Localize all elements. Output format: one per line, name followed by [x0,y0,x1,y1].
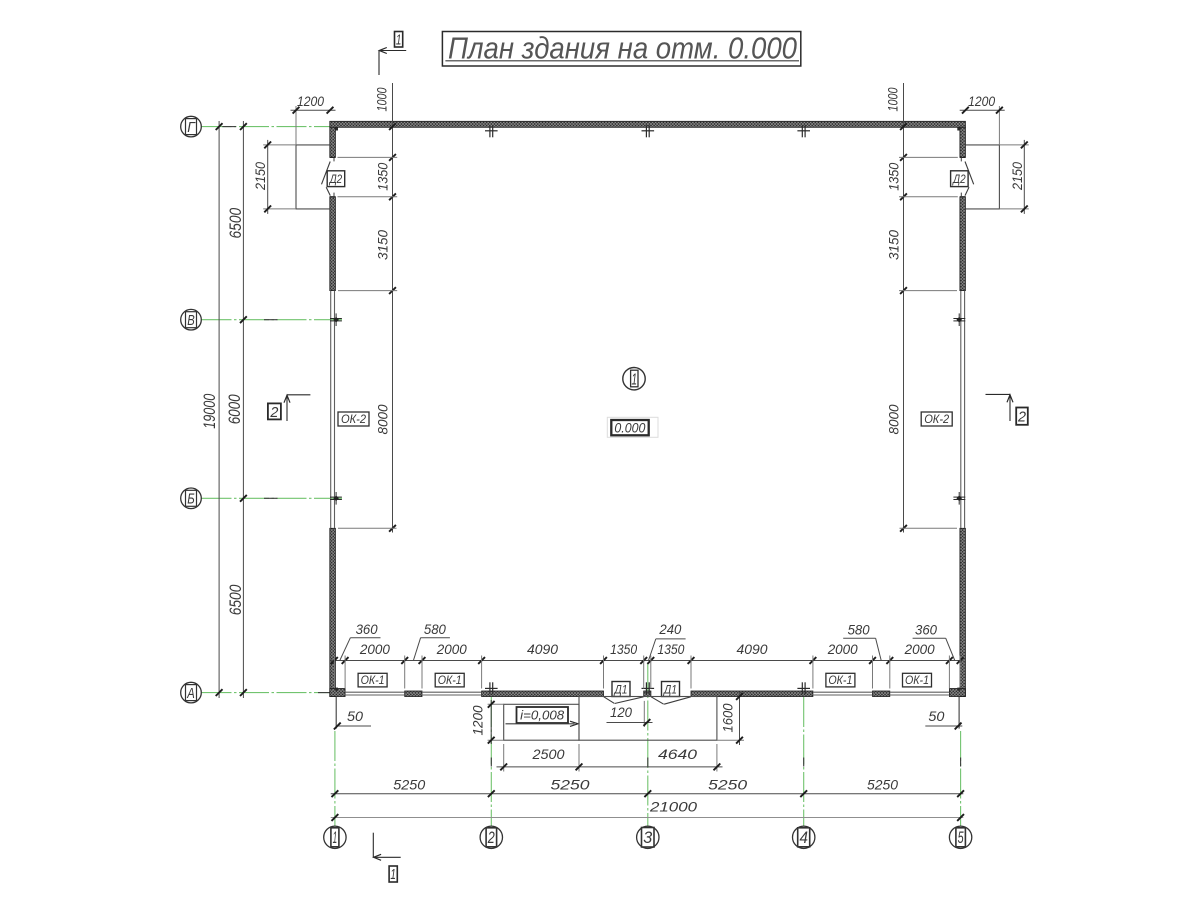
svg-text:1350: 1350 [376,162,391,190]
svg-text:Б: Б [187,491,195,508]
svg-text:5250: 5250 [708,778,748,793]
svg-text:5250: 5250 [551,778,591,793]
svg-text:1: 1 [632,371,638,388]
svg-text:8000: 8000 [886,404,901,434]
svg-text:1: 1 [390,867,396,883]
svg-text:2000: 2000 [436,642,467,657]
svg-text:8000: 8000 [375,404,390,434]
svg-text:5250: 5250 [393,778,426,793]
svg-text:120: 120 [610,705,632,720]
svg-text:19000: 19000 [201,393,219,429]
svg-text:2000: 2000 [359,642,390,657]
svg-text:1000: 1000 [375,87,390,111]
svg-text:2150: 2150 [253,162,268,191]
svg-text:ОК-1: ОК-1 [905,675,929,687]
svg-text:1: 1 [396,33,402,49]
svg-text:1200: 1200 [297,94,324,109]
svg-text:ОК-1: ОК-1 [361,675,385,687]
svg-text:360: 360 [915,623,937,638]
svg-text:6500: 6500 [227,207,245,238]
svg-text:ОК-1: ОК-1 [828,675,852,687]
svg-text:21000: 21000 [649,800,698,815]
svg-text:2000: 2000 [904,642,935,657]
svg-text:0.000: 0.000 [614,421,645,436]
svg-text:4640: 4640 [658,747,698,762]
svg-text:50: 50 [928,709,945,724]
svg-text:1350: 1350 [657,642,684,657]
svg-text:Д2: Д2 [951,172,965,186]
svg-text:1: 1 [333,829,338,847]
svg-text:3150: 3150 [375,230,390,260]
svg-text:2500: 2500 [531,747,565,762]
svg-text:3150: 3150 [886,230,901,260]
svg-text:1200: 1200 [471,705,486,735]
svg-text:1350: 1350 [610,642,637,657]
svg-text:580: 580 [848,623,870,638]
svg-text:1350: 1350 [887,162,902,190]
svg-text:i=0,008: i=0,008 [520,709,564,723]
svg-text:В: В [187,312,195,329]
svg-text:6000: 6000 [226,394,244,425]
svg-text:50: 50 [347,709,364,724]
svg-text:2000: 2000 [827,642,858,657]
svg-text:ОК-2: ОК-2 [924,414,950,426]
svg-text:2150: 2150 [1010,162,1025,191]
svg-text:5: 5 [958,829,965,847]
svg-text:1000: 1000 [886,87,901,111]
svg-text:4090: 4090 [527,642,558,657]
svg-text:2: 2 [1017,409,1027,426]
svg-text:Д2: Д2 [328,172,342,186]
svg-text:ОК-1: ОК-1 [438,675,462,687]
svg-text:240: 240 [658,622,681,637]
svg-text:5250: 5250 [867,778,898,793]
svg-text:360: 360 [356,622,378,637]
svg-text:4090: 4090 [737,642,768,657]
svg-text:3: 3 [643,829,653,847]
svg-text:2: 2 [269,404,279,421]
svg-text:1200: 1200 [968,94,995,109]
svg-text:6500: 6500 [227,584,245,615]
svg-text:1600: 1600 [721,703,736,732]
svg-text:А: А [186,685,194,702]
svg-text:2: 2 [487,829,495,847]
svg-text:Д1: Д1 [613,682,628,696]
svg-text:Д1: Д1 [662,682,677,696]
svg-text:580: 580 [424,622,446,637]
svg-text:ОК-2: ОК-2 [341,414,367,426]
svg-text:4: 4 [800,829,809,847]
